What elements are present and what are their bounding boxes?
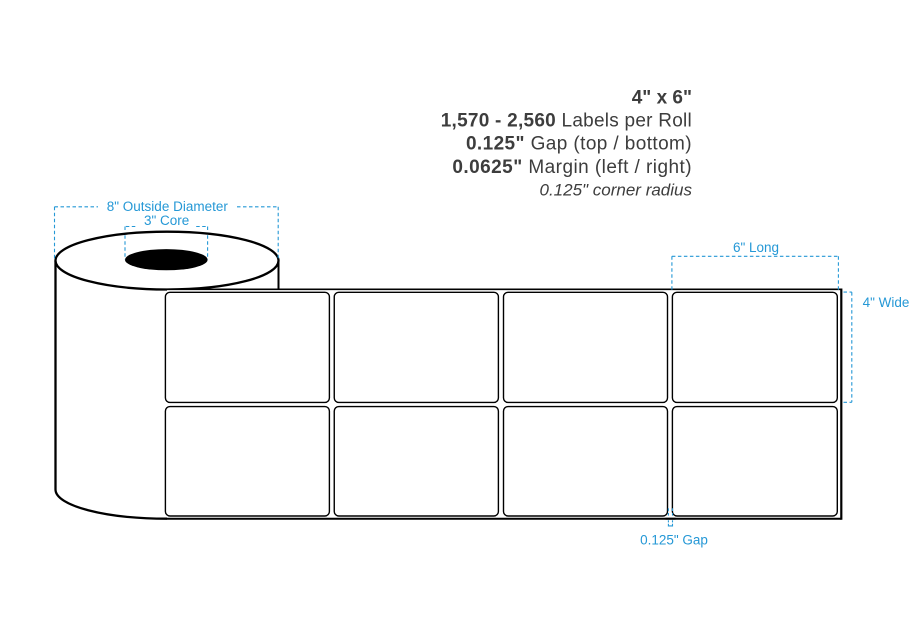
svg-text:0.125" Gap: 0.125" Gap [640,532,708,547]
svg-text:3" Core: 3" Core [144,213,189,228]
svg-text:1,570 - 2,560 Labels per Roll: 1,570 - 2,560 Labels per Roll [441,111,692,132]
svg-text:8" Outside Diameter: 8" Outside Diameter [107,199,229,214]
svg-text:4" x 6": 4" x 6" [632,88,692,109]
svg-text:4" Wide: 4" Wide [863,295,910,310]
svg-text:0.125" Gap (top / bottom): 0.125" Gap (top / bottom) [466,134,692,155]
svg-text:6" Long: 6" Long [733,240,779,255]
svg-text:0.0625" Margin (left / right): 0.0625" Margin (left / right) [452,157,692,178]
svg-text:0.125" corner radius: 0.125" corner radius [539,181,692,200]
